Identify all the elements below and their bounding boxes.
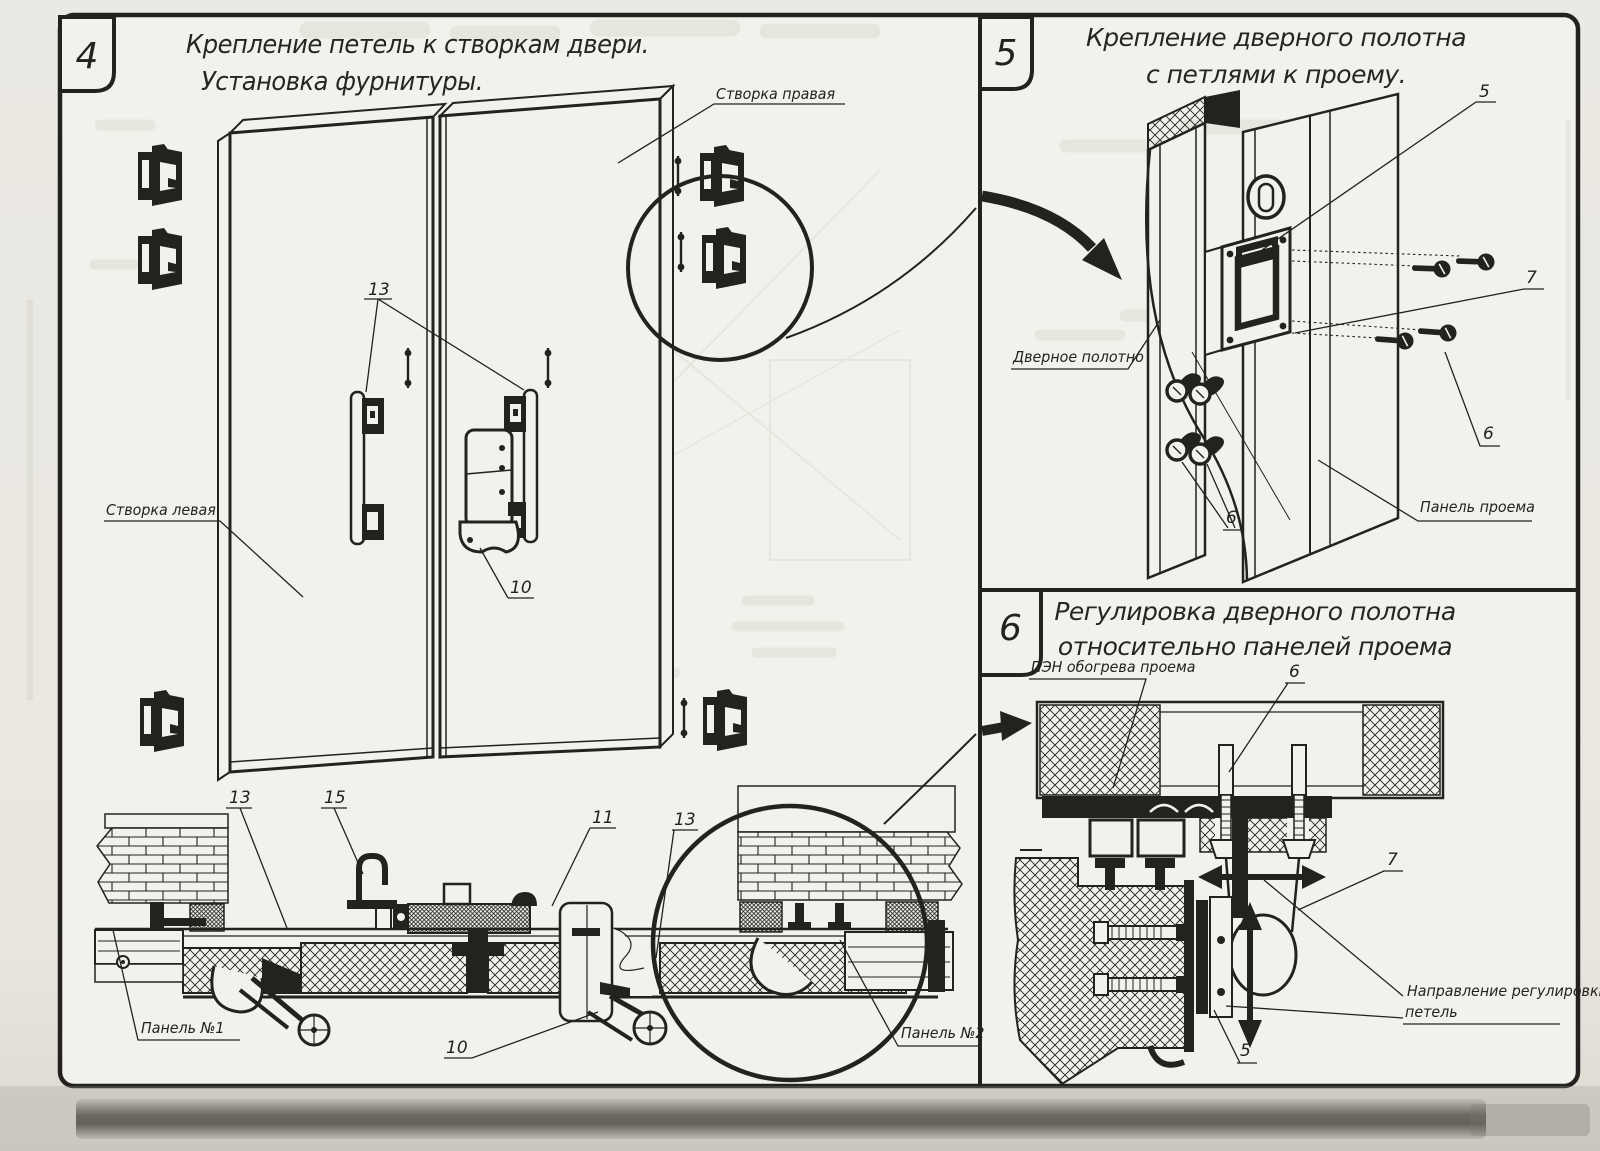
label-panel-no1: Панель №1 [141, 1021, 224, 1037]
callout-7-hinge: 7 [1526, 268, 1537, 288]
label-adjustment-direction-line2: петель [1405, 1005, 1458, 1021]
figure4-title-line1: Крепление петель к створкам двери. [186, 30, 649, 60]
figure5-title-line2: с петлями к проему. [1046, 60, 1506, 89]
scan-dark-band [76, 1099, 1486, 1139]
label-leaf-right: Створка правая [716, 87, 835, 103]
label-opening-panel: Панель проема [1420, 500, 1535, 516]
figure6-number: 6 [980, 608, 1041, 649]
figure4-number: 4 [60, 36, 114, 77]
callout-7-hinge-arm: 7 [1387, 850, 1398, 870]
figure6-title-line1: Регулировка дверного полотна [1050, 597, 1460, 626]
scan-dark-band-right [1470, 1104, 1590, 1136]
label-pen-heater: ПЭН обогрева проема [1031, 660, 1195, 676]
figure5-title-line1: Крепление дверного полотна [1046, 23, 1506, 52]
callout-11-section: 11 [592, 808, 614, 828]
figure4-doors [218, 86, 673, 780]
figure6-title-line2: относительно панелей проема [1050, 632, 1460, 661]
callout-13-section-a: 13 [229, 788, 251, 808]
figure4-title-line2: Установка фурнитуры. [201, 67, 483, 97]
drawing-linework [0, 0, 1600, 1151]
callout-13-hinge-plates: 13 [368, 280, 390, 300]
label-adjustment-direction-line1: Направление регулировки [1407, 984, 1600, 1000]
callout-6-bolt: 6 [1289, 662, 1300, 682]
scanned-drawing-sheet: 4 Крепление петель к створкам двери. Уст… [0, 0, 1600, 1151]
label-door-leaf: Дверное полотно [1013, 350, 1144, 366]
figure5-number: 5 [980, 33, 1032, 74]
label-panel-no2: Панель №2 [901, 1026, 984, 1042]
callout-6-screws-right: 6 [1483, 424, 1494, 444]
callout-5-hinge-base: 5 [1240, 1041, 1251, 1061]
callout-13-section-b: 13 [674, 810, 696, 830]
callout-10-lock: 10 [510, 578, 532, 598]
callout-5-hinge: 5 [1479, 82, 1490, 102]
label-leaf-left: Створка левая [106, 503, 216, 519]
callout-10-section: 10 [446, 1038, 468, 1058]
callout-6-screws-left: 6 [1226, 508, 1237, 528]
callout-15-section: 15 [324, 788, 346, 808]
